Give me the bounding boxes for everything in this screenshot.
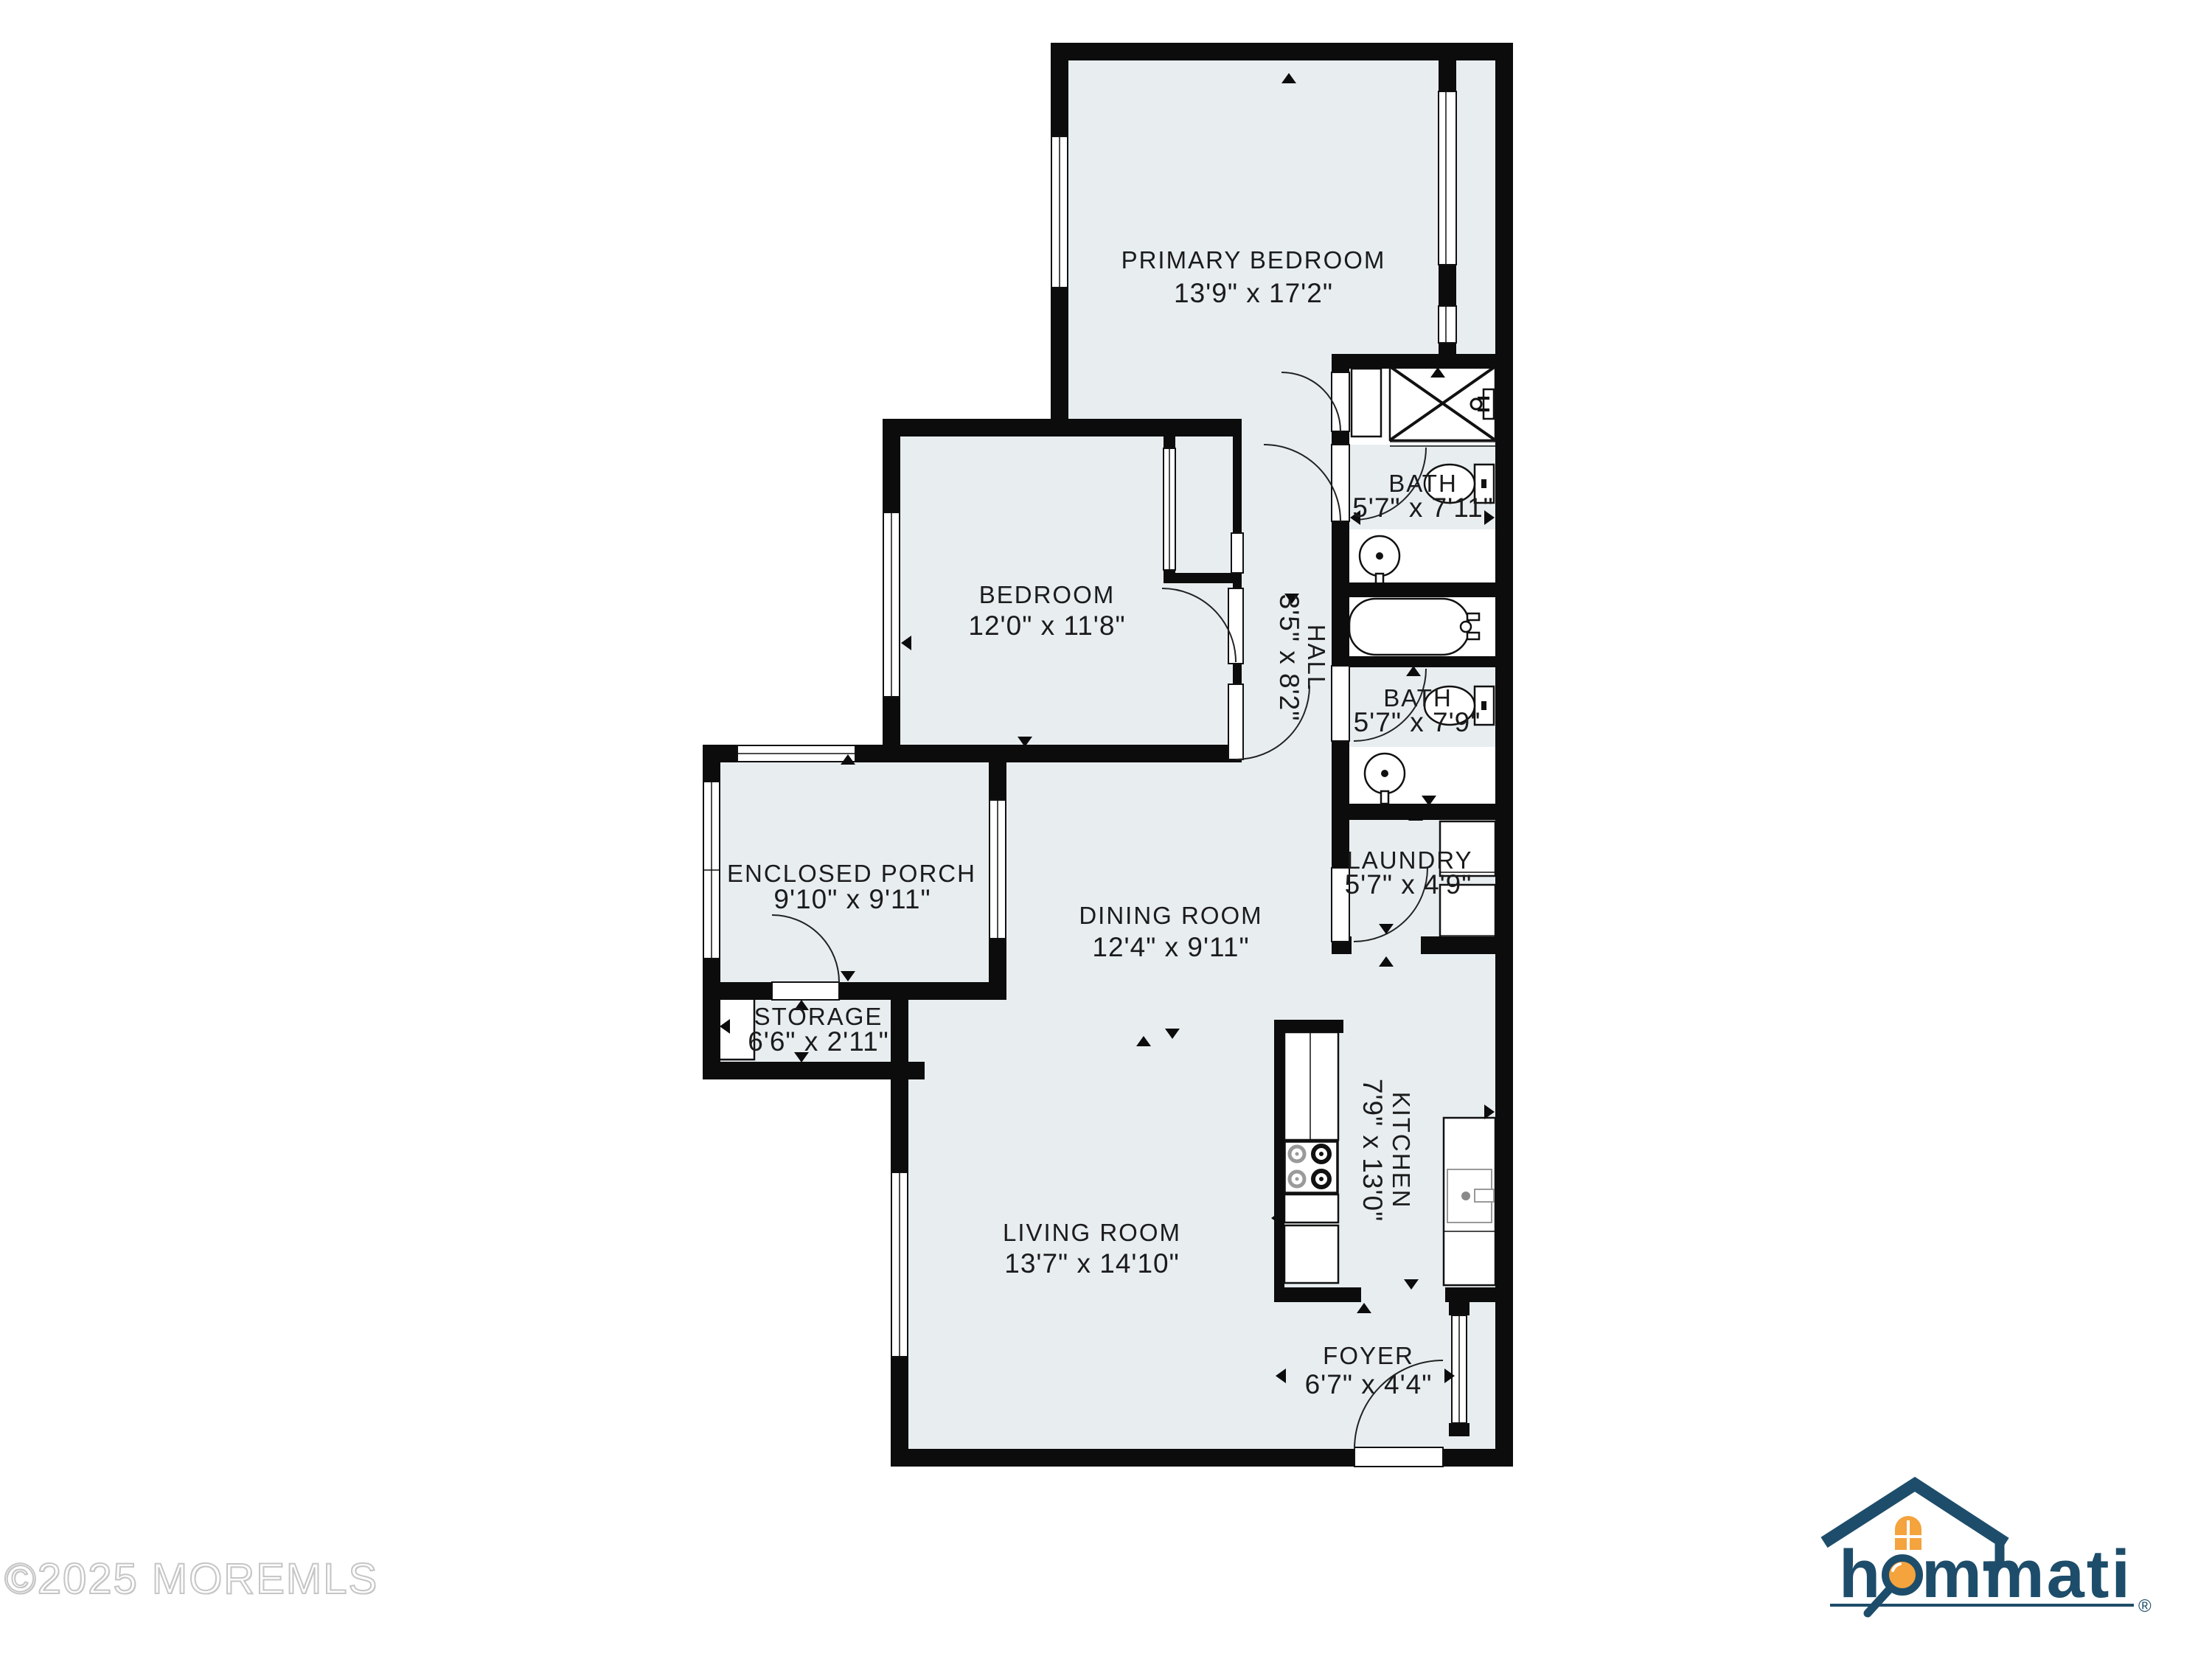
mls-watermark: ©2025 MOREMLS [4,1554,378,1604]
linen-cabinet [1352,369,1381,437]
room-dims-living-room: 13'7" x 14'10" [1004,1248,1180,1279]
room-label-foyer: FOYER [1323,1342,1414,1369]
kitchen-counter-right [1444,1118,1495,1285]
room-dims-dining-room: 12'4" x 9'11" [1092,932,1249,962]
window-porch-top [737,745,855,762]
kitchen-counter-left [1284,1032,1338,1283]
room-dims-kitchen: 7'9" x 13'0" [1357,1079,1388,1222]
window-bedroom [883,512,900,697]
room-label-enclosed-porch: ENCLOSED PORCH [727,860,976,887]
room-label-kitchen-group: KITCHEN 7'9" x 13'0" [1357,1079,1415,1222]
bedroom-closet-slider [1164,448,1175,570]
room-label-dining-room: DINING ROOM [1079,902,1262,929]
room-dims-laundry: 5'7" x 4'9" [1345,869,1472,900]
room-label-hall: HALL [1303,625,1330,692]
window-porch-left [703,782,720,959]
room-dims-bath-2: 5'7" x 7'9" [1354,707,1481,737]
room-dims-foyer: 6'7" x 4'4" [1305,1369,1433,1399]
room-dims-bath-1: 5'7" x 7'11" [1352,493,1494,523]
window-porch-right [990,800,1006,939]
registered-mark: ® [2138,1596,2152,1616]
closet-slider-2 [1439,306,1456,343]
hall-closet-panel [1231,533,1243,573]
shower [1390,366,1495,446]
hommati-logo: h mmati ® [1824,1484,2152,1616]
room-label-bedroom: BEDROOM [979,581,1116,608]
room-dims-hall: 3'5" x 8'2" [1274,594,1304,722]
window-living-room [891,1172,908,1357]
room-dims-primary-bedroom: 13'9" x 17'2" [1174,278,1333,308]
closet-slider-1 [1439,91,1456,265]
room-label-primary-bedroom: PRIMARY BEDROOM [1121,246,1386,274]
room-label-living-room: LIVING ROOM [1003,1219,1181,1246]
room-dims-bedroom: 12'0" x 11'8" [968,611,1125,641]
room-dims-enclosed-porch: 9'10" x 9'11" [773,884,931,914]
floor-plan-page: PRIMARY BEDROOM 13'9" x 17'2" BATH 5'7" … [0,0,2212,1659]
window-icon [1895,1516,1921,1550]
foyer-side-panel [1452,1315,1467,1423]
room-label-kitchen: KITCHEN [1388,1092,1415,1209]
room-dims-storage: 6'6" x 2'11" [748,1026,889,1057]
floor-plan-drawing: PRIMARY BEDROOM 13'9" x 17'2" BATH 5'7" … [0,0,2212,1659]
logo-text-rest: mmati [1921,1537,2132,1612]
window-primary-bedroom [1051,136,1068,288]
bathtub [1349,599,1479,655]
